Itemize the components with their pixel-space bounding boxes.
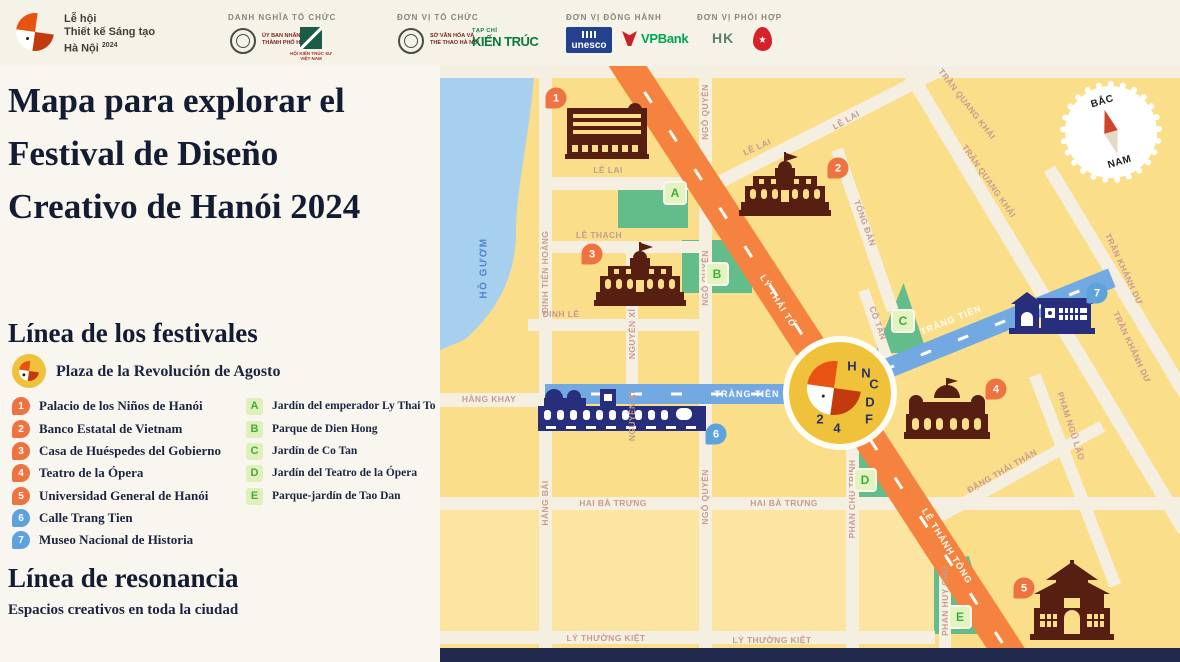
vpbank-logo-icon: [622, 31, 637, 46]
hub-letter-h: H: [847, 359, 856, 374]
street-label: LÝ THƯỜNG KIỆT: [567, 633, 646, 643]
page-title: Mapa para explorar el Festival de Diseño…: [8, 74, 360, 233]
building-banco-estatal-icon: [739, 152, 831, 218]
legend-park-d: D Jardín del Teatro de la Ópera: [246, 463, 417, 483]
legend-park-a: A Jardín del emperador Ly Thai To: [246, 396, 436, 416]
youth-union-flame-icon: [753, 27, 772, 51]
street-label: HÀNG KHAY: [462, 394, 516, 404]
legend-park-e: E Parque-jardín de Tao Dan: [246, 486, 401, 506]
park-a-label: Jardín del emperador Ly Thai To: [272, 400, 436, 412]
street-label: ĐINH TIÊN HOÀNG: [540, 231, 550, 314]
stop-4-label: Teatro de la Ópera: [39, 465, 143, 481]
park-b-chip: B: [246, 421, 263, 438]
header-group-label-organizer: ĐƠN VỊ TỔ CHỨC: [397, 13, 479, 22]
legend-stop-7: 7 Museo Nacional de Historia: [12, 530, 193, 550]
street-label: NGÔ QUYỀN: [700, 469, 710, 525]
street-label: LÝ THƯỜNG KIỆT: [733, 635, 812, 645]
map-pin-7: 7: [1087, 282, 1108, 303]
lake-label: HỒ GƯƠM: [479, 237, 490, 298]
legend-stop-5: 5 Universidad General de Hanói: [12, 486, 208, 506]
festival-map-poster: Lễ hội Thiết kế Sáng tạo Hà Nội 2024 DAN…: [0, 0, 1180, 662]
street-label: HAI BÀ TRƯNG: [750, 498, 818, 508]
header-group-label-partner: ĐƠN VỊ ĐỒNG HÀNH: [566, 13, 662, 22]
legend-stop-4: 4 Teatro de la Ópera: [12, 463, 143, 483]
park-d-chip: D: [246, 465, 263, 482]
logo-year: 2024: [102, 42, 118, 49]
festival-logo-icon: [14, 11, 57, 54]
map-chip-a: A: [663, 181, 687, 205]
compass-inner: BẮC NAM: [1054, 75, 1168, 189]
stop-2-pin: 2: [12, 420, 30, 438]
compass-needle-icon: [1098, 108, 1124, 156]
architects-association-caption: HỘI KIẾN TRÚC SƯ VIỆT NAM: [287, 51, 335, 61]
map-pin-5: 5: [1014, 577, 1035, 598]
footer-strip: [440, 648, 1180, 662]
unesco-logo: unesco: [566, 27, 612, 53]
park-a-chip: A: [246, 398, 263, 415]
stop-6-pin: 6: [12, 509, 30, 527]
festival-logo-text: Lễ hội Thiết kế Sáng tạo Hà Nội 2024: [64, 13, 155, 56]
logo-line-1: Lễ hội: [64, 13, 155, 26]
logo-line-2: Thiết kế Sáng tạo: [64, 26, 155, 39]
legend-stop-6: 6 Calle Trang Tien: [12, 508, 133, 528]
header-group-label-coordinator: ĐƠN VỊ PHỐI HỢP: [697, 13, 782, 22]
street-label: HÀNG BÀI: [540, 480, 550, 525]
map-chip-d: D: [853, 468, 877, 492]
stop-7-pin: 7: [12, 531, 30, 549]
kientruc-magazine-logo: KIẾN TRÚC: [472, 34, 538, 49]
resonance-line-heading: Línea de resonancia: [8, 563, 239, 594]
map-pin-6: 6: [706, 423, 727, 444]
block-shading: [440, 510, 935, 631]
map-pin-4: 4: [986, 378, 1007, 399]
hub-letter-d: D: [865, 395, 874, 410]
map-chip-e: E: [948, 605, 972, 629]
festival-line-heading: Línea de los festivales: [8, 318, 258, 349]
map-pin-2: 2: [828, 157, 849, 178]
legend-panel: Mapa para explorar el Festival de Diseño…: [0, 66, 440, 662]
legend-park-c: C Jardín de Co Tan: [246, 441, 357, 461]
building-universidad-icon: [1026, 560, 1118, 642]
map-pin-3: 3: [582, 243, 603, 264]
header-bar: Lễ hội Thiết kế Sáng tạo Hà Nội 2024 DAN…: [0, 0, 1180, 66]
stop-5-pin: 5: [12, 487, 30, 505]
hub-letter-c: C: [869, 377, 878, 392]
stop-3-pin: 3: [12, 442, 30, 460]
building-teatro-opera-icon: [904, 378, 990, 442]
street-dinh-le: [528, 319, 705, 331]
building-trang-tien-arcade-icon: [538, 386, 706, 431]
street-dinh-tien-hoang-hang-bai: [539, 66, 552, 650]
map-chip-b: B: [705, 262, 729, 286]
park-d-label: Jardín del Teatro de la Ópera: [272, 467, 417, 479]
resonance-line-text: Espacios creativos en toda la ciudad: [8, 602, 238, 619]
compass-south-label: NAM: [1106, 154, 1132, 171]
street-label: HAI BÀ TRƯNG: [579, 498, 647, 508]
legend-stop-2: 2 Banco Estatal de Vietnam: [12, 419, 182, 439]
stop-3-label: Casa de Huéspedes del Gobierno: [39, 443, 221, 459]
logo-line-3: Hà Nội 2024: [64, 39, 155, 56]
legend-stop-1: 1 Palacio de los Niños de Hanói: [12, 396, 203, 416]
map-pin-1: 1: [546, 87, 567, 108]
park-e-chip: E: [246, 488, 263, 505]
park-c-label: Jardín de Co Tan: [272, 445, 357, 457]
street-label: LÊ THẠCH: [576, 230, 622, 240]
park-c-chip: C: [246, 443, 263, 460]
street-label: LÊ LAI: [593, 165, 622, 175]
street-label: NGÔ QUYỀN: [700, 84, 710, 140]
street-label: NGUYỄN XÍ: [627, 309, 637, 359]
street-ly-thuong-kiet: [440, 631, 935, 644]
map-chip-c: C: [891, 309, 915, 333]
street-label: TRÀNG TIỀN: [715, 389, 780, 399]
legend-park-b: B Parque de Dien Hong: [246, 419, 378, 439]
plaza-label: Plaza de la Revolución de Agosto: [56, 363, 280, 381]
building-palacio-ninos-icon: [563, 100, 651, 160]
plaza-pinwheel-icon: [18, 360, 41, 383]
stop-4-pin: 4: [12, 464, 30, 482]
stop-5-label: Universidad General de Hanói: [39, 488, 208, 504]
stop-1-pin: 1: [12, 397, 30, 415]
stop-6-label: Calle Trang Tien: [39, 510, 133, 526]
city-map: H N C D F 2 4 BẮC NAM: [440, 66, 1180, 662]
vietnam-architects-association-icon: [300, 27, 322, 49]
vpbank-logo-text: VPBank: [641, 31, 688, 46]
legend-stop-3: 3 Casa de Huéspedes del Gobierno: [12, 441, 221, 461]
hanoi-peoples-committee-seal-icon: [230, 28, 256, 54]
hub-number-2: 2: [816, 412, 823, 427]
hub-number-4: 4: [833, 421, 840, 436]
park-e-label: Parque-jardín de Tao Dan: [272, 490, 401, 502]
building-museo-historia-icon: [1007, 290, 1095, 338]
building-casa-huespedes-icon: [594, 242, 686, 308]
header-group-label-organizing-name: DANH NGHĨA TỔ CHỨC: [228, 13, 336, 22]
culture-sports-department-seal-icon: [398, 28, 424, 54]
park-b-label: Parque de Dien Hong: [272, 423, 378, 435]
plaza-hub-icon: [12, 354, 46, 388]
hub-letter-f: F: [865, 412, 873, 427]
street-label: NGUYỄN XÍ: [627, 391, 637, 441]
stop-2-label: Banco Estatal de Vietnam: [39, 421, 182, 437]
hk-logo: HK: [712, 30, 734, 46]
compass-rose: BẮC NAM: [1065, 86, 1157, 178]
stop-7-label: Museo Nacional de Historia: [39, 532, 193, 548]
stop-1-label: Palacio de los Niños de Hanói: [39, 398, 203, 414]
